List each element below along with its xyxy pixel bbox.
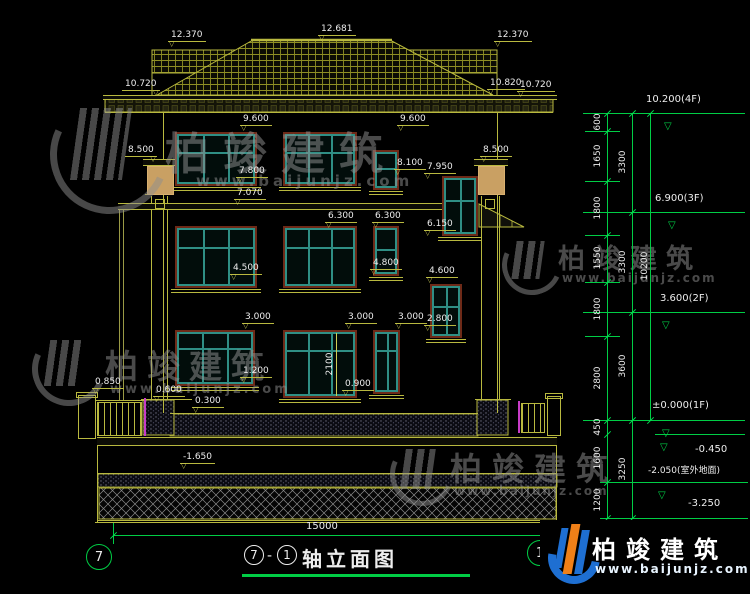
logo-url: www.baijunjz.com xyxy=(595,562,750,576)
terrace-line xyxy=(170,413,478,414)
fence-panel-left xyxy=(97,402,142,436)
window xyxy=(283,226,357,288)
elev-label: 8.500 xyxy=(125,145,157,157)
elev-label: 6.150 xyxy=(424,219,456,231)
elev-label: 4.800 xyxy=(370,258,402,270)
elev-label: 3.000 xyxy=(242,312,274,324)
column-base-right xyxy=(477,400,508,435)
drawing-title: 轴立面图 xyxy=(302,543,398,572)
elev-label: 2.800 xyxy=(424,314,456,326)
window-sill xyxy=(279,399,361,403)
window-sill xyxy=(369,395,404,399)
overall-dim-value: 15000 xyxy=(306,521,338,532)
elev-label: 0.900 xyxy=(342,379,374,391)
elev-label: 7.950 xyxy=(424,162,456,174)
dim-value: 3600 xyxy=(618,355,628,378)
elev-label: 3.000 xyxy=(395,312,427,324)
watermark-logo-bars xyxy=(400,449,436,489)
dim-value: 1800 xyxy=(593,197,603,220)
title-underline xyxy=(242,574,470,577)
elev-label: -1.650 xyxy=(180,452,215,464)
dim-value: 1550 xyxy=(593,247,603,270)
tick-line xyxy=(585,336,620,337)
elev-label: 3.000 xyxy=(345,312,377,324)
elev-label: 0.300 xyxy=(192,396,224,408)
fence-post-cap xyxy=(545,393,563,399)
window-sill xyxy=(171,289,261,293)
watermark-logo-bars xyxy=(70,108,132,180)
dim-value: 3300 xyxy=(618,251,628,274)
watermark: 柏竣建筑 www.baijunjz.com xyxy=(388,440,628,502)
dim-2100-line xyxy=(336,333,337,396)
floor-marker: 6.900(3F) xyxy=(655,193,704,204)
window-sill xyxy=(279,289,361,293)
elevation-drawing-canvas: 2100 12.370 12.681 12.370 10.720 10.820 … xyxy=(0,0,750,594)
elev-label: 12.370 xyxy=(494,30,532,42)
elev-label: 1.200 xyxy=(240,366,272,378)
title-dash: - xyxy=(267,548,272,564)
elev-label: 4.600 xyxy=(426,266,458,278)
floor-marker: -3.250 xyxy=(688,498,720,509)
dim-value: 3300 xyxy=(618,151,628,174)
column-right-cap xyxy=(474,159,508,166)
watermark-logo-bars xyxy=(511,241,544,279)
window-sill xyxy=(369,277,403,281)
marker-triangle xyxy=(658,483,666,502)
dim-value: 1800 xyxy=(593,298,603,321)
watermark-logo-bars xyxy=(44,340,84,386)
tick-line xyxy=(585,235,620,236)
watermark-url: www.baijunjz.com xyxy=(110,382,291,397)
logo-name: 柏竣建筑 xyxy=(592,530,728,565)
level-line xyxy=(583,212,745,213)
marker-triangle xyxy=(662,313,670,332)
tick-line xyxy=(585,131,620,132)
dim-value: 10200 xyxy=(640,252,650,281)
elev-label: 6.300 xyxy=(372,211,404,223)
window-sill xyxy=(438,237,482,241)
floor-marker: ±0.000(1F) xyxy=(652,400,709,411)
title-bubble-right: 1 xyxy=(277,545,297,565)
floor-marker: 10.200(4F) xyxy=(646,94,701,105)
column-right-shaft xyxy=(481,196,482,400)
elev-label: 7.070 xyxy=(234,188,266,200)
stair-window xyxy=(430,284,462,338)
dim-value: 3250 xyxy=(618,458,628,481)
terrace-fill xyxy=(170,414,478,436)
elev-label: 10.720 xyxy=(122,79,160,91)
title-bubble-left: 7 xyxy=(244,545,264,565)
window xyxy=(175,226,257,288)
dim-value: 450 xyxy=(593,418,603,435)
marker-triangle xyxy=(660,435,668,454)
dim-value: 1600 xyxy=(593,447,603,470)
elev-label: 9.600 xyxy=(397,114,429,126)
elev-label: 6.300 xyxy=(325,211,357,223)
column-right-detail xyxy=(485,199,495,209)
column-base-left xyxy=(143,400,174,435)
elev-label: 0.600 xyxy=(153,385,185,397)
brand-logo: 柏竣建筑 www.baijunjz.com xyxy=(540,520,750,594)
tick-line xyxy=(585,181,620,182)
floor-marker: -0.450 xyxy=(695,444,727,455)
dim-value: 1200 xyxy=(593,489,603,512)
elev-label: 7.800 xyxy=(236,166,268,178)
marker-triangle xyxy=(664,114,672,133)
floor-marker: -2.050(室外地面) xyxy=(648,463,720,476)
elev-label: 9.600 xyxy=(240,114,272,126)
column-right-base-cap xyxy=(475,399,511,400)
elev-label: 8.100 xyxy=(394,158,426,170)
dim-chain-c xyxy=(650,113,651,420)
fence-magenta-line xyxy=(518,401,520,433)
dim-value: 2800 xyxy=(593,367,603,390)
window xyxy=(373,330,400,394)
wall-right-edge xyxy=(497,113,498,413)
elev-label: 0.850 xyxy=(92,377,124,389)
watermark-name: 柏竣建筑 xyxy=(105,340,273,388)
overall-dim-line xyxy=(113,535,556,536)
marker-triangle xyxy=(668,213,676,232)
elev-label: 4.500 xyxy=(230,263,262,275)
column-right-capital xyxy=(478,166,505,195)
elev-label: 12.370 xyxy=(168,30,206,42)
fence-post-right xyxy=(547,396,561,436)
dim-chain-a xyxy=(607,113,608,518)
fence-magenta-line xyxy=(144,398,146,436)
window-sill xyxy=(426,339,466,343)
dim-value: 1650 xyxy=(593,145,603,168)
elev-label: 10.720 xyxy=(517,80,555,92)
basement-wall-left xyxy=(97,446,98,522)
watermark-url: www.baijunjz.com xyxy=(196,172,413,190)
level-line xyxy=(600,518,748,519)
dim-chain-b xyxy=(632,113,633,518)
level-line xyxy=(600,482,748,483)
floor-marker: 3.600(2F) xyxy=(660,293,709,304)
column-right-shaft xyxy=(499,196,500,400)
elev-label: 8.500 xyxy=(480,145,512,157)
dim-value: 600 xyxy=(593,113,603,130)
watermark-url: www.baijunjz.com xyxy=(454,484,609,498)
axis-bubble-left: 7 xyxy=(86,544,112,570)
elev-label: 12.681 xyxy=(318,24,356,36)
tick-line xyxy=(585,282,620,283)
dim-2100-label: 2100 xyxy=(325,353,335,376)
fence-panel-right xyxy=(521,403,545,433)
